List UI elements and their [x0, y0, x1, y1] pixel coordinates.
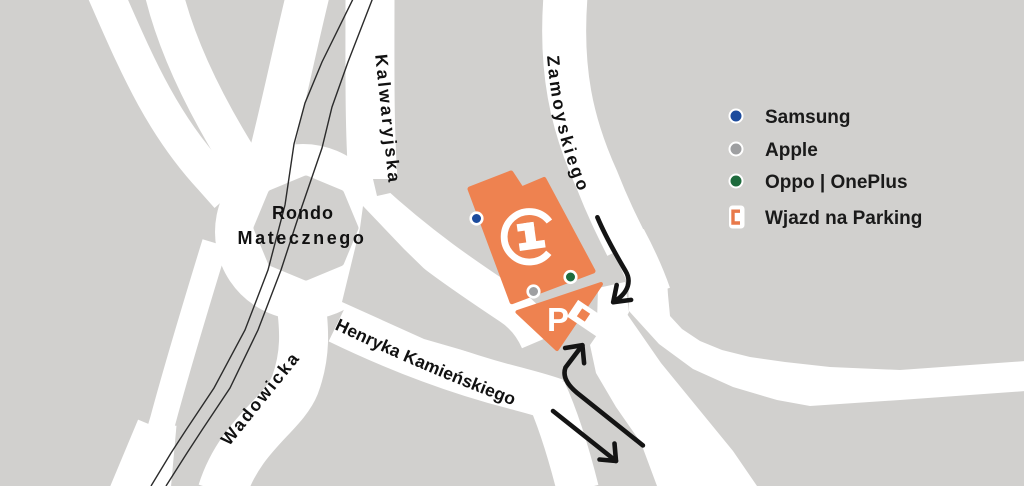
- svg-text:Samsung: Samsung: [765, 107, 851, 128]
- svg-text:Wjazd na Parking: Wjazd na Parking: [765, 208, 922, 229]
- svg-text:Matecznego: Matecznego: [237, 228, 366, 248]
- svg-text:Apple: Apple: [765, 140, 818, 161]
- svg-text:Oppo | OnePlus: Oppo | OnePlus: [765, 172, 908, 193]
- svg-text:P: P: [547, 301, 569, 338]
- svg-text:Rondo: Rondo: [272, 203, 334, 223]
